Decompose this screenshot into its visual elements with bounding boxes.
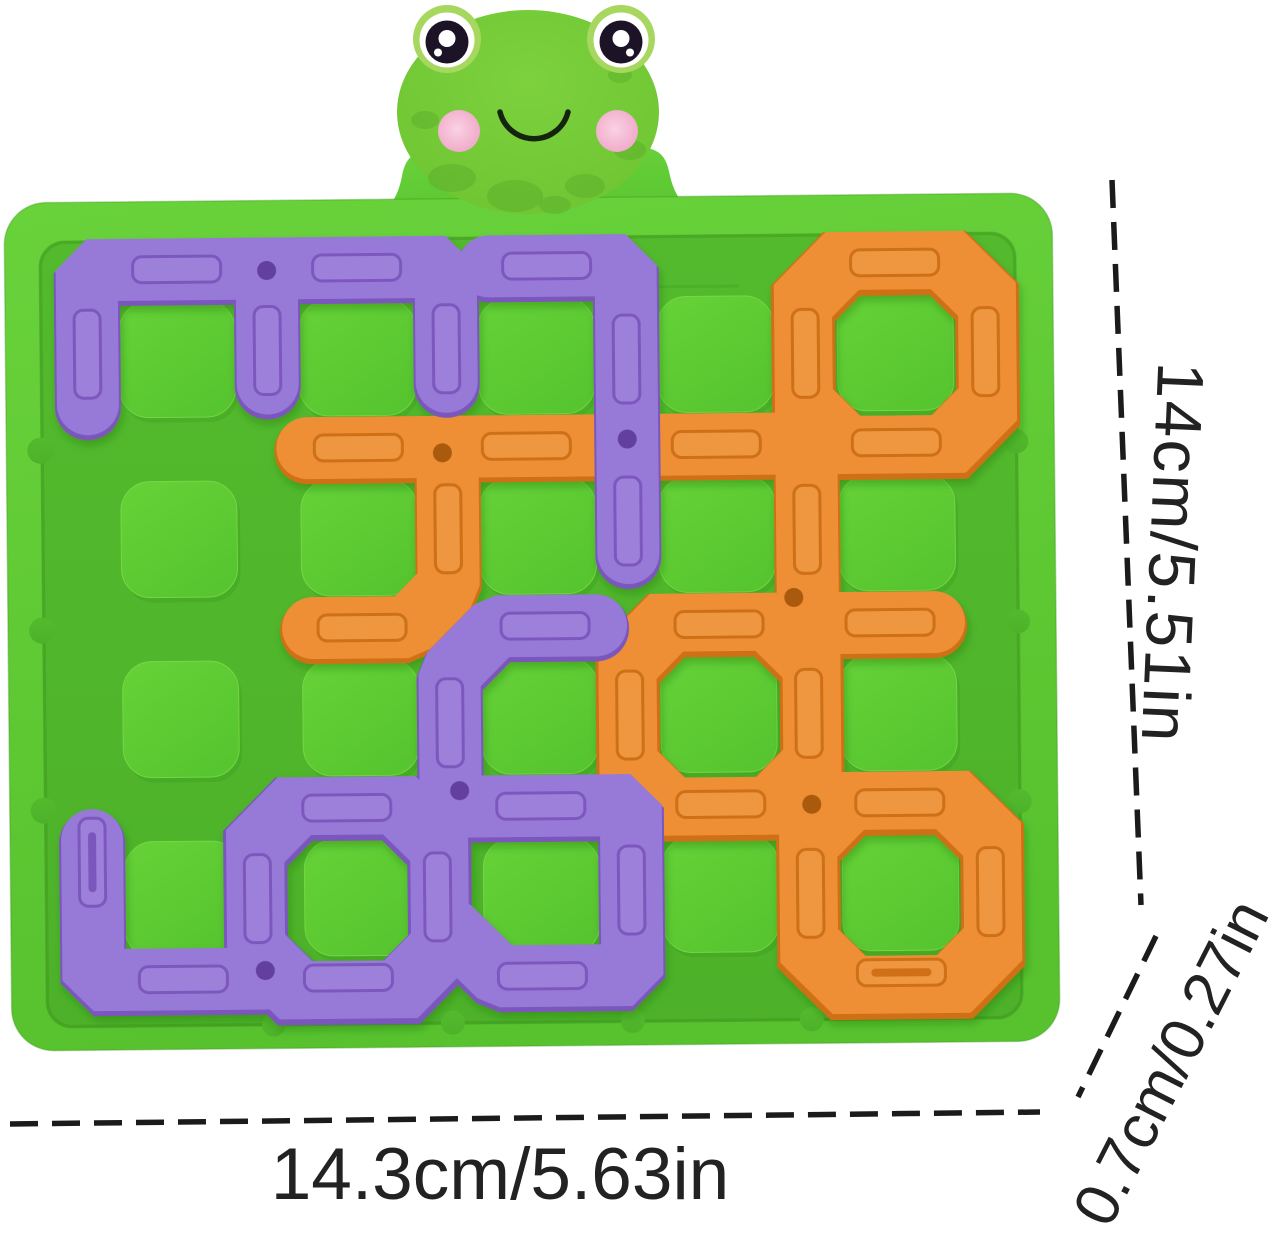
svg-text:14.3cm/5.63in: 14.3cm/5.63in (271, 1134, 730, 1215)
